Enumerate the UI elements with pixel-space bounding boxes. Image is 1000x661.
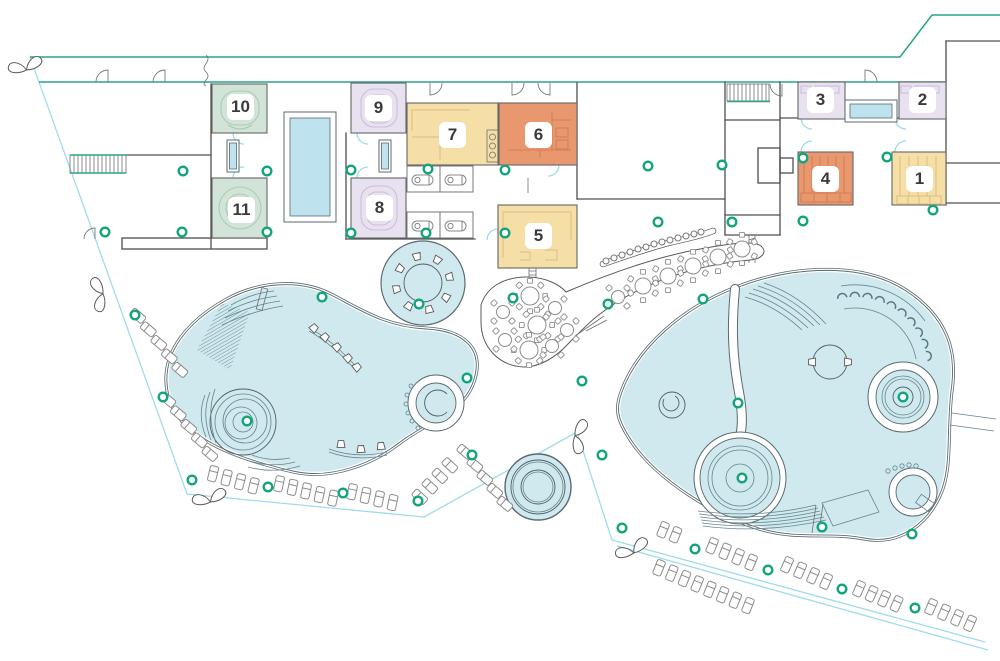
site-boundary-teal xyxy=(30,15,1000,82)
room-badge-7: 7 xyxy=(439,122,466,148)
jacuzzi-bar xyxy=(381,241,465,325)
room-badge-6: 6 xyxy=(525,122,552,148)
lap-lane xyxy=(950,413,996,431)
right-lagoon-pool xyxy=(618,270,996,539)
room-badge-5: 5 xyxy=(525,223,552,249)
room-badge-11: 11 xyxy=(228,197,255,223)
room-badge-4: 4 xyxy=(812,166,839,192)
room-badge-10: 10 xyxy=(227,94,254,120)
room-badge-1: 1 xyxy=(906,166,933,192)
spa-resort-floor-plan: 1 2 3 4 5 6 7 8 9 10 11 xyxy=(0,0,1000,661)
stairs-left xyxy=(70,155,126,173)
room-badge-8: 8 xyxy=(366,195,393,221)
massage-tables xyxy=(407,166,473,238)
room-badge-3: 3 xyxy=(807,87,834,113)
room-badge-9: 9 xyxy=(365,95,392,121)
stairs-middle xyxy=(727,84,770,102)
plan-drawing xyxy=(0,0,1000,661)
room-badge-2: 2 xyxy=(909,87,936,113)
small-round-pool xyxy=(505,454,571,520)
